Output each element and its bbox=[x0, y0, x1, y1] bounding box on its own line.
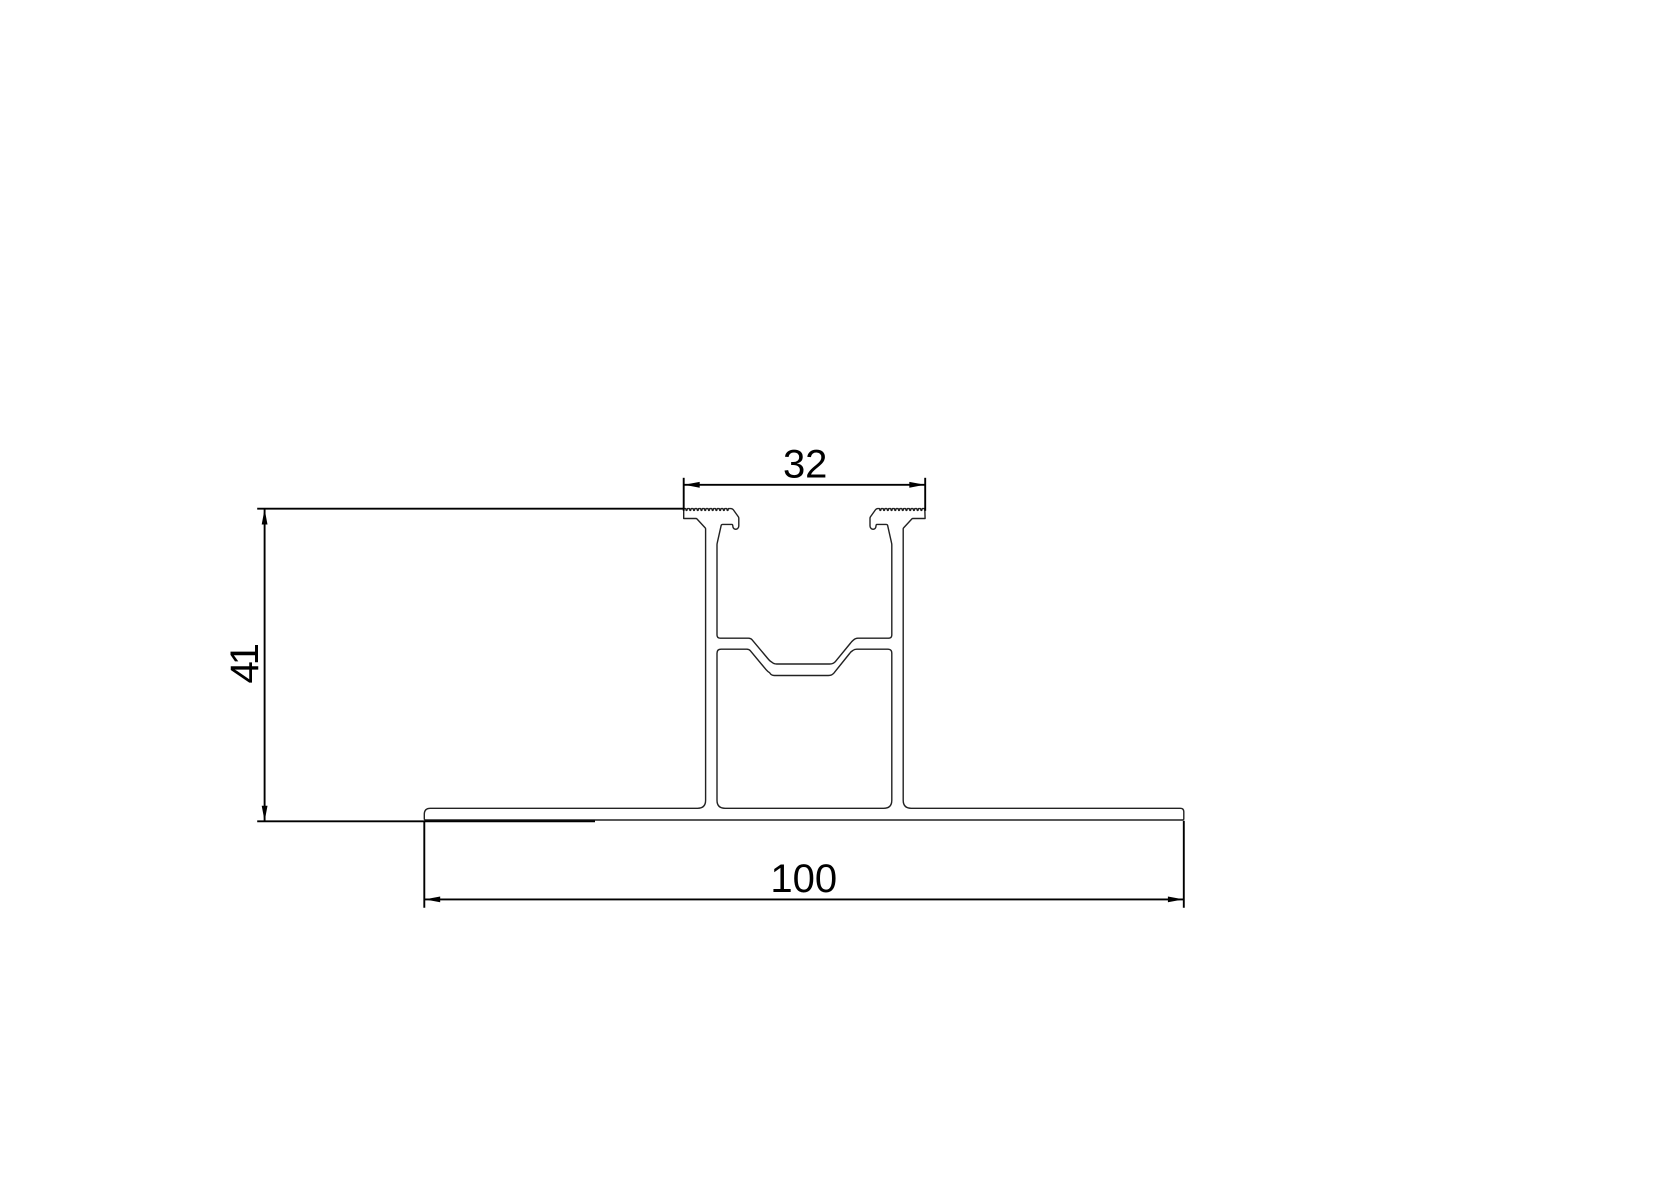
svg-text:32: 32 bbox=[783, 443, 828, 487]
svg-text:41: 41 bbox=[223, 644, 267, 683]
svg-text:100: 100 bbox=[770, 857, 837, 901]
